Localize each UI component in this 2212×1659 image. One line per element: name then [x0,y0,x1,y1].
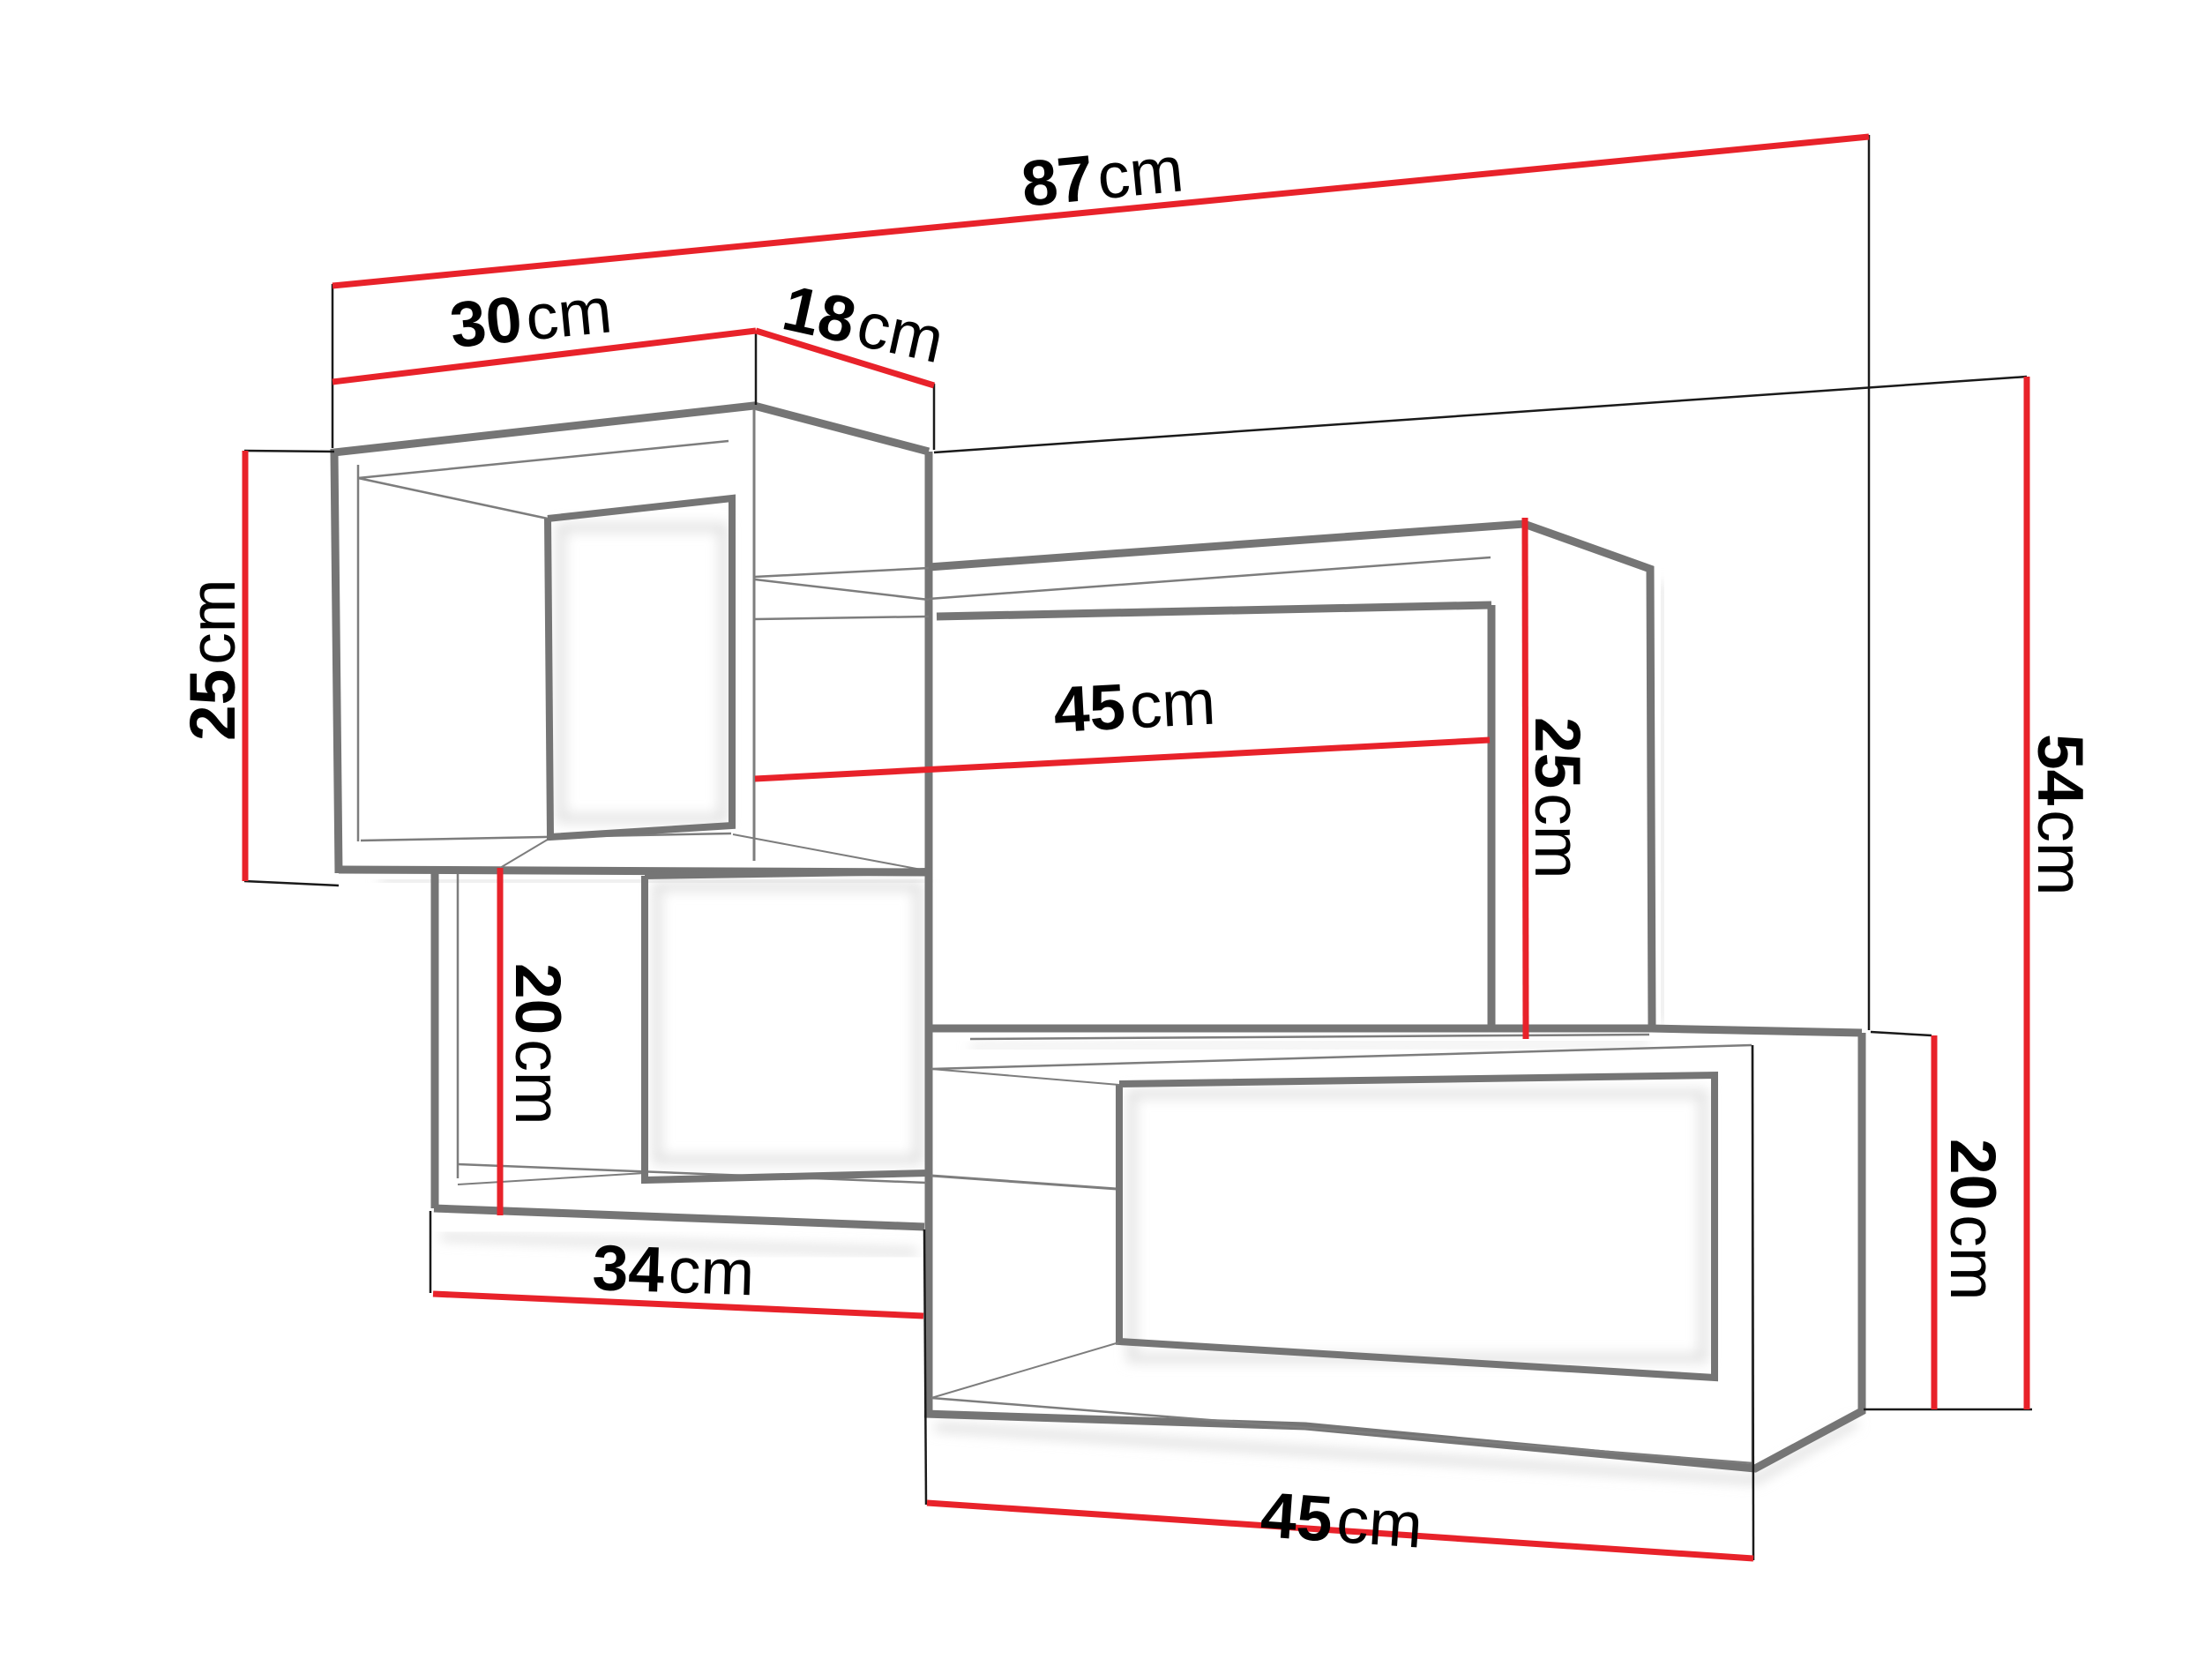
svg-text:25cm: 25cm [177,579,249,741]
svg-text:54cm: 54cm [2024,734,2096,896]
svg-text:34cm: 34cm [591,1232,755,1309]
svg-text:20cm: 20cm [502,963,573,1125]
svg-text:45cm: 45cm [1259,1479,1425,1562]
svg-text:20cm: 20cm [1937,1139,2008,1301]
svg-text:45cm: 45cm [1052,666,1218,745]
svg-text:25cm: 25cm [1521,717,1593,879]
